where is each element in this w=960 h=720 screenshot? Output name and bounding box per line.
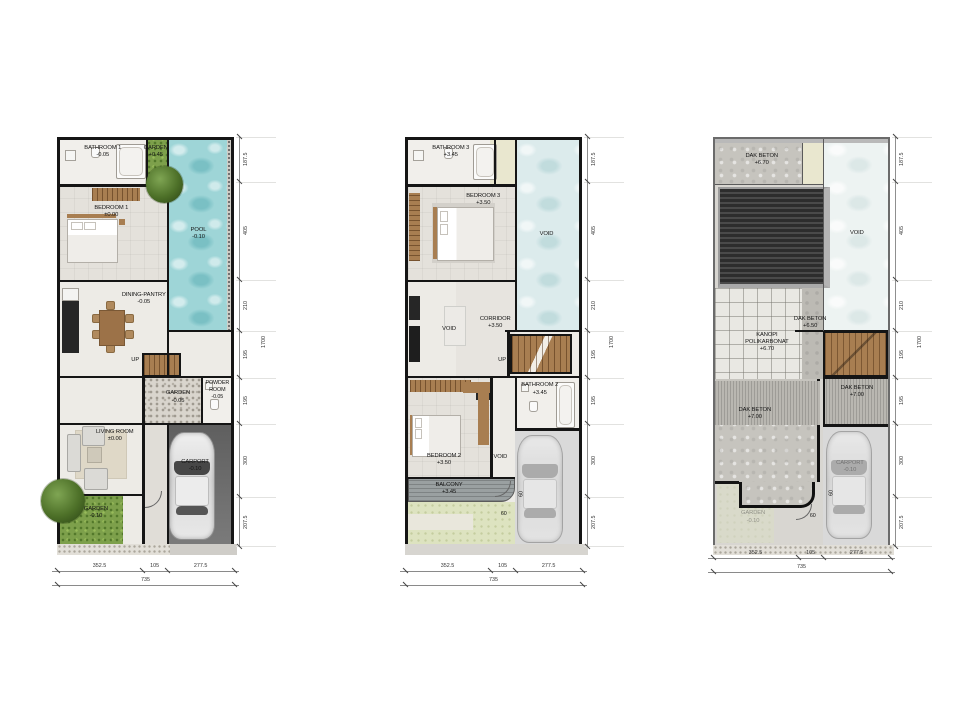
dim-line — [400, 585, 587, 586]
dim-total: 1700 — [609, 137, 620, 547]
room-level: +0.45 — [144, 152, 168, 159]
chair — [125, 314, 134, 323]
dim-line — [708, 572, 895, 573]
dim-value: 207.5 — [899, 497, 910, 547]
wall — [60, 280, 167, 283]
label-void: VOID — [850, 230, 864, 237]
dim-value: 300 — [899, 424, 910, 497]
dim-value: 210 — [591, 280, 602, 331]
wall — [507, 331, 510, 377]
room-level: -0.05 — [122, 299, 166, 306]
room-level: +6.70 — [744, 346, 790, 353]
dim-value: 195 — [591, 378, 602, 424]
stairs — [142, 353, 180, 376]
wardrobe — [409, 193, 420, 262]
dim-line — [239, 137, 240, 547]
room-level: -0.10 — [836, 467, 864, 474]
room-name: GARDEN — [144, 145, 168, 152]
coffee-table — [87, 447, 102, 463]
roof-panel — [802, 143, 823, 184]
car-rear-window — [524, 508, 556, 518]
stairs-roof-opening — [823, 331, 888, 377]
label-void-entry: VOID — [493, 454, 507, 461]
entry-path — [142, 423, 166, 544]
wall — [60, 423, 231, 426]
label-bathroom-3: BATHROOM 3+3.45 — [432, 145, 469, 159]
armchair — [84, 468, 108, 490]
fridge — [62, 288, 79, 301]
dim-value: 300 — [591, 424, 602, 497]
room-level: +7.00 — [739, 414, 772, 421]
dim-line — [52, 571, 239, 572]
room-name: DAK BETON — [841, 385, 874, 392]
dim-value: 195 — [243, 331, 254, 378]
room-name: POWDER ROOM — [204, 380, 230, 394]
dim-line — [708, 558, 895, 559]
label-dak-beton-mid: DAK BETON+6.50 — [794, 316, 827, 330]
dim-value: 405 — [591, 182, 602, 280]
bed — [412, 415, 461, 457]
plan-roof: DAK BETON+6.70 VOID DAK BETON+6.50 KANOP… — [713, 137, 890, 547]
label-dak-beton-top: DAK BETON+6.70 — [745, 153, 778, 167]
room-name: KANOPI POLIKARBONAT — [744, 332, 790, 346]
dim-line — [52, 585, 239, 586]
wall — [60, 376, 231, 379]
paver-strip — [408, 514, 473, 530]
kitchen-counter — [409, 296, 420, 320]
room-level: ±0.00 — [96, 436, 134, 443]
room-name: VOID — [850, 230, 864, 237]
label-bathroom-2: BATHROOM 2+3.45 — [521, 382, 558, 396]
label-balcony: BALCONY+3.45 — [436, 482, 463, 496]
room-name: GARDEN — [166, 390, 190, 397]
label-garden-mid: GARDEN-0.05 — [166, 390, 190, 404]
pillow — [71, 222, 83, 230]
pool-edge — [227, 140, 231, 331]
room-name: DINING-PANTRY — [122, 292, 166, 299]
wall — [490, 377, 493, 478]
room-level: -0.05 — [84, 152, 121, 159]
wall — [167, 331, 170, 378]
room-name: BATHROOM 1 — [84, 145, 121, 152]
stairs-direction: UP — [131, 357, 139, 364]
dim-value: 187.5 — [243, 137, 254, 182]
kitchen-counter — [409, 326, 420, 362]
label-dak-beton-right: DAK BETON+7.00 — [841, 385, 874, 399]
car-roof — [175, 476, 209, 506]
chair — [125, 330, 134, 339]
label-void-pool: VOID — [540, 231, 554, 238]
room-name: BEDROOM 1 — [94, 205, 128, 212]
room-name: POOL — [191, 227, 207, 234]
offset-dim: 60 — [518, 491, 525, 497]
dim-value: 195 — [243, 378, 254, 424]
wall — [802, 143, 804, 184]
wall — [515, 428, 579, 431]
dim-value: 277.5 — [515, 563, 582, 569]
bed — [67, 219, 119, 263]
dim-value: 60 — [810, 513, 816, 520]
car-rear-window — [833, 505, 865, 515]
wall — [795, 330, 888, 333]
label-garden-bottom: GARDEN-0.10 — [84, 506, 108, 520]
wardrobe — [92, 188, 141, 201]
stairs-direction: UP — [498, 357, 506, 364]
room-name: DAK BETON — [745, 153, 778, 160]
sink — [65, 150, 76, 161]
plan-ground-floor: BATHROOM 1-0.05 GARDEN+0.45 BEDROOM 1±0.… — [57, 137, 234, 547]
dim-total: 735 — [57, 577, 234, 583]
label-bathroom-1: BATHROOM 1-0.05 — [84, 145, 121, 159]
room-name: CARPORT — [836, 460, 864, 467]
room-name: VOID — [540, 231, 554, 238]
desk — [463, 382, 490, 393]
room-level: +3.50 — [427, 460, 461, 467]
dim-value: 352.5 — [713, 550, 798, 556]
room-level: -0.05 — [204, 394, 230, 401]
room-name: VOID — [442, 326, 456, 333]
wall — [823, 376, 888, 379]
room-level: +3.45 — [436, 489, 463, 496]
sidewalk-strip — [405, 544, 588, 555]
label-corridor: CORRIDOR+3.50 — [480, 316, 511, 330]
dim-value: 195 — [591, 331, 602, 378]
stairs — [510, 334, 572, 374]
car-roof — [832, 476, 866, 506]
room-name: CARPORT — [181, 459, 209, 466]
dim-value: 60 — [518, 491, 525, 497]
dak-beton-mid — [802, 288, 823, 379]
room-level: +7.00 — [841, 392, 874, 399]
wall — [823, 331, 826, 425]
car — [826, 431, 872, 539]
room-level: +3.45 — [432, 152, 469, 159]
dim-value: 300 — [243, 424, 254, 497]
room-level: -0.10 — [191, 234, 207, 241]
tree — [146, 166, 183, 203]
label-garden-top: GARDEN+0.45 — [144, 145, 168, 159]
room-level: +6.50 — [794, 323, 827, 330]
kitchen-counter — [62, 301, 79, 354]
dim-value: 277.5 — [823, 550, 890, 556]
label-up: UP — [498, 357, 506, 364]
label-powder: POWDER ROOM-0.05 — [204, 380, 230, 400]
room-level: +3.45 — [521, 390, 558, 397]
room-name: BALCONY — [436, 482, 463, 489]
desk — [478, 393, 489, 446]
wall — [167, 423, 170, 544]
room-level: +6.70 — [745, 160, 778, 167]
dim-value: 60 — [501, 511, 507, 518]
dim-line — [587, 137, 588, 547]
label-void-left: VOID — [442, 326, 456, 333]
offset-dim: 60 — [810, 513, 816, 520]
dim-value: 60 — [828, 491, 835, 497]
dim-value: 105 — [142, 563, 167, 569]
room-name: BATHROOM 3 — [432, 145, 469, 152]
dim-line — [400, 571, 587, 572]
wall — [823, 139, 825, 331]
dim-chain-bottom-1: 352.5 105 277.5 735 — [57, 561, 234, 591]
dim-value: 187.5 — [899, 137, 910, 182]
room-level: +3.50 — [480, 323, 511, 330]
room-name: BATHROOM 2 — [521, 382, 558, 389]
room-level: -0.10 — [181, 466, 209, 473]
room-level: -0.10 — [741, 518, 765, 525]
room-name: BEDROOM 3 — [466, 193, 500, 200]
wall — [494, 140, 496, 184]
sidewalk-strip — [170, 544, 237, 555]
dim-total: 1700 — [917, 137, 928, 547]
dim-value: 187.5 — [591, 137, 602, 182]
car — [169, 432, 215, 540]
dim-value: 207.5 — [591, 497, 602, 547]
wall — [823, 424, 888, 427]
dim-chain-right-1: 187.5 405 210 195 195 300 207.5 1700 — [236, 137, 282, 547]
label-garden: GARDEN-0.10 — [741, 510, 765, 524]
car — [517, 435, 563, 543]
room-level: +3.50 — [466, 200, 500, 207]
sink — [413, 150, 424, 161]
dim-value: 352.5 — [405, 563, 490, 569]
dim-value: 210 — [243, 280, 254, 331]
room-name: CORRIDOR — [480, 316, 511, 323]
pillow — [415, 429, 422, 439]
dim-chain-right-2: 187.5 405 210 195 195 300 207.5 1700 — [584, 137, 630, 547]
wall — [408, 376, 579, 379]
label-kanopi: KANOPI POLIKARBONAT+6.70 — [744, 332, 790, 354]
dim-value: 210 — [899, 280, 910, 331]
label-bedroom-3: BEDROOM 3+3.50 — [466, 193, 500, 207]
dim-line — [895, 137, 896, 547]
label-pool: POOL-0.10 — [191, 227, 207, 241]
label-up: UP — [131, 357, 139, 364]
room-name: GARDEN — [84, 506, 108, 513]
wall — [408, 477, 515, 480]
label-dak-beton-left: DAK BETON+7.00 — [739, 407, 772, 421]
label-bedroom-2: BEDROOM 2+3.50 — [427, 453, 461, 467]
dim-value: 277.5 — [167, 563, 234, 569]
room-name: GARDEN — [741, 510, 765, 517]
label-dining: DINING-PANTRY-0.05 — [122, 292, 166, 306]
dining-table — [99, 310, 125, 346]
wall — [715, 481, 739, 484]
gravel-strip — [57, 544, 170, 555]
pillow — [440, 211, 448, 222]
dim-value: 405 — [243, 182, 254, 280]
wall — [142, 377, 145, 544]
dim-value: 105 — [798, 550, 823, 556]
car-roof — [523, 479, 557, 509]
wall — [201, 377, 203, 423]
room-name: BEDROOM 2 — [427, 453, 461, 460]
pillow — [415, 418, 422, 428]
dim-value: 105 — [490, 563, 515, 569]
plan-upper-floor: BATHROOM 3+3.45 BEDROOM 3+3.50 VOID CORR… — [405, 137, 582, 547]
dim-value: 195 — [899, 331, 910, 378]
label-carport: CARPORT-0.10 — [836, 460, 864, 474]
dim-chain-right-3: 187.5 405 210 195 195 300 207.5 1700 — [892, 137, 938, 547]
bathtub — [556, 382, 575, 428]
room-name: DAK BETON — [739, 407, 772, 414]
sofa — [67, 434, 81, 472]
bed — [437, 207, 494, 262]
toilet — [529, 401, 538, 412]
nightstand — [119, 219, 125, 225]
room-level: -0.10 — [84, 513, 108, 520]
dim-value: 405 — [899, 182, 910, 280]
room-level: -0.05 — [166, 398, 190, 405]
wall — [408, 280, 515, 283]
offset-dim: 60 — [828, 491, 835, 497]
dim-total: 735 — [713, 564, 890, 570]
chair — [106, 344, 115, 353]
label-living: LIVING ROOM±0.00 — [96, 429, 134, 443]
dim-chain-bottom-2: 352.5 105 277.5 735 — [405, 561, 582, 591]
metal-roof — [718, 187, 830, 288]
dim-total: 1700 — [261, 137, 272, 547]
label-carport: CARPORT-0.10 — [181, 459, 209, 473]
wall — [167, 330, 231, 333]
room-name: LIVING ROOM — [96, 429, 134, 436]
dim-value: 195 — [899, 378, 910, 424]
pillow — [84, 222, 96, 230]
chair — [106, 301, 115, 310]
room-name: VOID — [493, 454, 507, 461]
offset-dim: 60 — [501, 511, 507, 518]
car-windshield — [522, 464, 558, 478]
wall — [515, 140, 518, 331]
wall — [715, 184, 823, 186]
dim-value: 207.5 — [243, 497, 254, 547]
floor-plan-sheet: BATHROOM 1-0.05 GARDEN+0.45 BEDROOM 1±0.… — [0, 0, 960, 720]
dim-total: 735 — [405, 577, 582, 583]
wall — [408, 184, 515, 187]
pillow — [440, 224, 448, 235]
dim-value: 352.5 — [57, 563, 142, 569]
car-rear-window — [176, 506, 208, 516]
label-bedroom-1: BEDROOM 1±0.00 — [94, 205, 128, 219]
room-level: ±0.00 — [94, 212, 128, 219]
dim-chain-bottom-3: 352.5 105 277.5 735 — [713, 548, 890, 578]
room-name: DAK BETON — [794, 316, 827, 323]
wall — [515, 377, 518, 429]
